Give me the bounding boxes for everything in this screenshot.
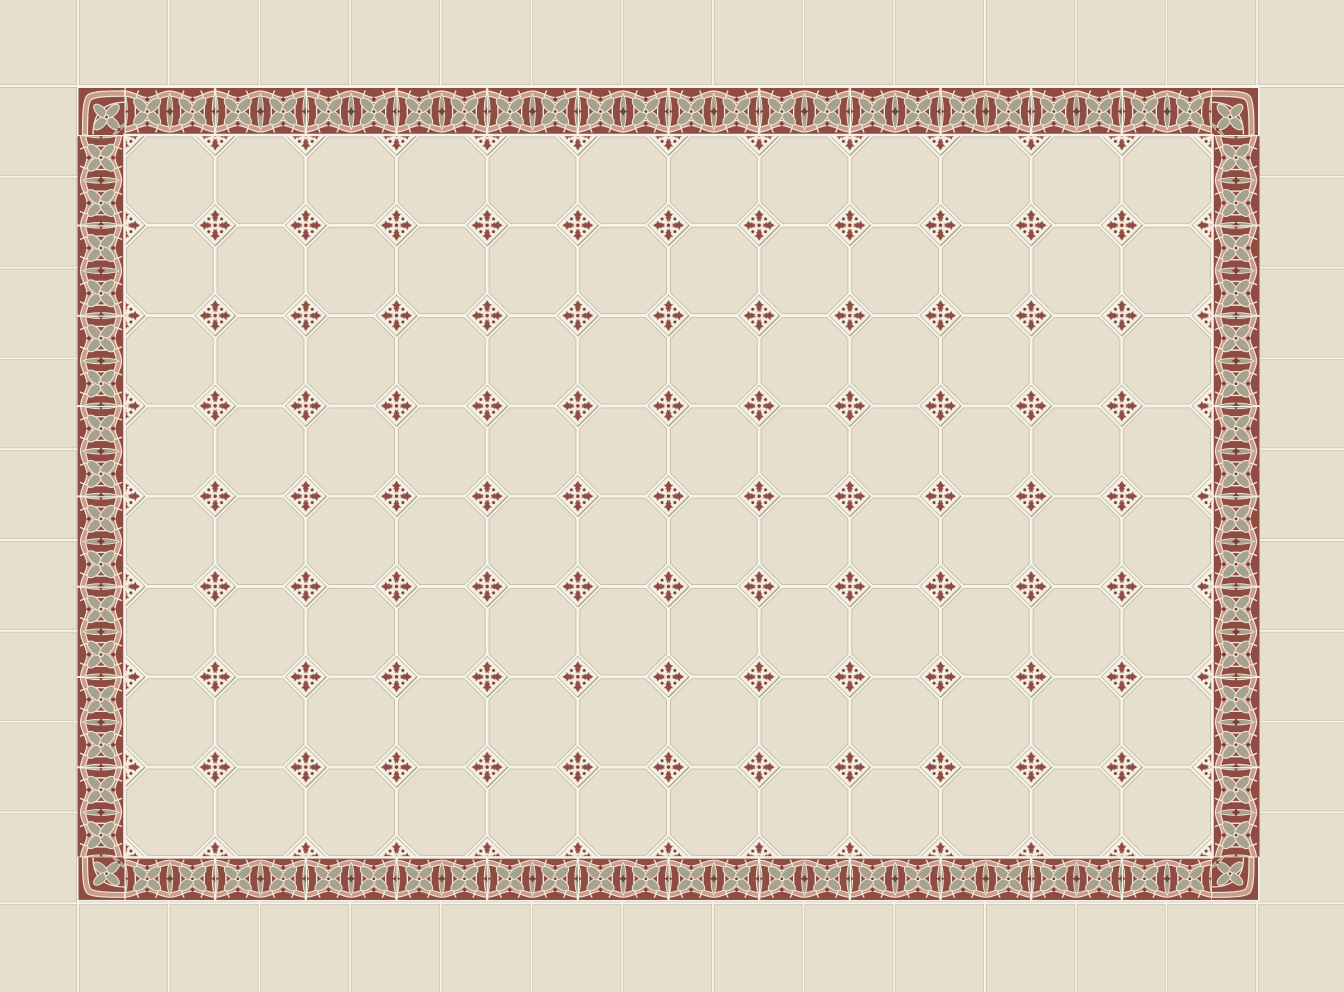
border-corner-tile-bottom-left: [79, 854, 128, 899]
border-tile: [1213, 763, 1260, 862]
border-tile: [845, 857, 944, 900]
border-corner-tile-bottom-right: [1209, 854, 1258, 899]
border-tile: [1213, 221, 1260, 320]
border-tile: [120, 857, 219, 900]
border-tile: [936, 857, 1035, 900]
border-band-right: [1213, 131, 1260, 863]
diamond-inserts: [125, 135, 1213, 857]
border-tile: [664, 857, 763, 900]
border-tile: [301, 88, 400, 135]
border-tile: [1213, 131, 1260, 230]
border-tile: [392, 88, 491, 135]
tile-floor-visualization: [0, 0, 1344, 992]
border-corner-tile-top-left: [79, 88, 128, 138]
border-tile: [78, 763, 125, 862]
border-tile: [1117, 857, 1216, 900]
border-corner-tile-top-right: [1209, 88, 1258, 138]
tile-floor-render: [0, 0, 1344, 992]
border-tile: [1213, 311, 1260, 410]
border-tile: [78, 672, 125, 771]
border-tile: [483, 88, 582, 135]
border-tile: [392, 857, 491, 900]
border-band-bottom: [120, 857, 1217, 900]
border-tile: [1213, 402, 1260, 501]
border-band-left: [78, 131, 125, 863]
border-tile: [78, 311, 125, 410]
border-tile: [78, 221, 125, 320]
border-tile: [78, 131, 125, 230]
border-tile: [936, 88, 1035, 135]
border-tile: [1213, 582, 1260, 681]
border-tile: [1027, 88, 1126, 135]
border-tile: [755, 857, 854, 900]
border-tile: [845, 88, 944, 135]
border-tile: [78, 582, 125, 681]
border-tile: [755, 88, 854, 135]
border-tile: [1213, 672, 1260, 771]
border-tile: [573, 857, 672, 900]
border-tile: [483, 857, 582, 900]
border-tile: [664, 88, 763, 135]
border-tile: [211, 857, 310, 900]
border-tile: [78, 492, 125, 591]
border-tile: [211, 88, 310, 135]
border-band-top: [120, 88, 1217, 135]
border-tile: [1117, 88, 1216, 135]
border-tile: [573, 88, 672, 135]
border-tile: [1027, 857, 1126, 900]
border-tile: [78, 402, 125, 501]
border-tile: [120, 88, 219, 135]
border-tile: [301, 857, 400, 900]
border-tile: [1213, 492, 1260, 591]
